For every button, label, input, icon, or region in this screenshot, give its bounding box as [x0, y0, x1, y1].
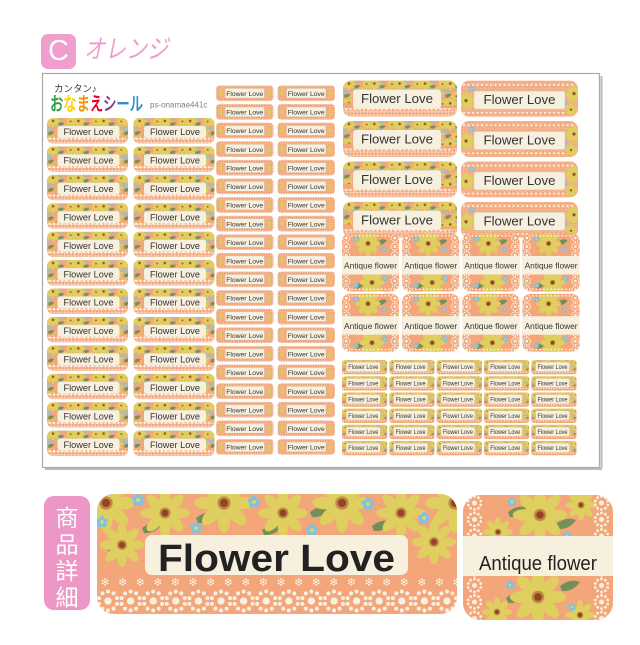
svg-text:商: 商: [56, 505, 79, 531]
svg-text:オレンジ: オレンジ: [84, 34, 170, 64]
svg-text:ps-onamae441c: ps-onamae441c: [150, 101, 207, 110]
svg-text:C: C: [48, 35, 69, 67]
svg-text:Antique flower: Antique flower: [479, 553, 597, 575]
svg-text:詳: 詳: [56, 558, 79, 584]
svg-text:おなまえシール: おなまえシール: [50, 94, 143, 115]
svg-text:細: 細: [56, 585, 79, 611]
svg-text:Flower Love: Flower Love: [158, 538, 395, 580]
svg-text:品: 品: [56, 532, 79, 558]
